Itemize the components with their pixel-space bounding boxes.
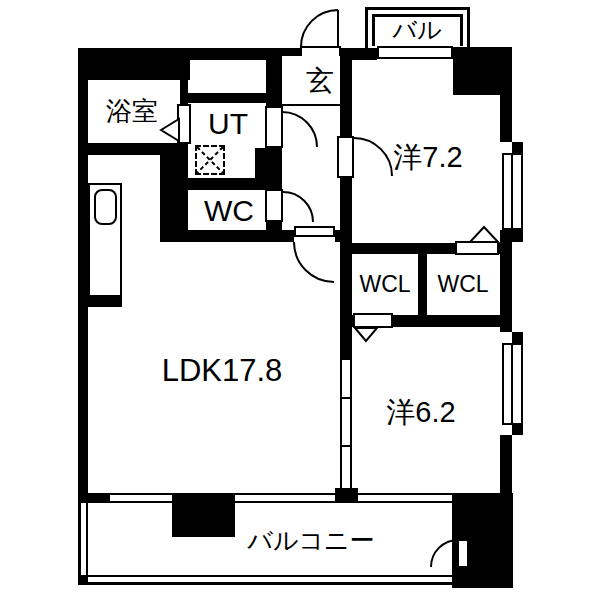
label-entrance: 玄 xyxy=(306,67,334,95)
door-swing-entrance xyxy=(301,10,338,47)
label-wcl-right: WCL xyxy=(437,273,488,296)
label-bathroom: 浴室 xyxy=(106,98,158,124)
door-triangle-bathroom xyxy=(161,119,179,141)
label-room72: 洋7.2 xyxy=(393,143,462,172)
door-swing-room72 xyxy=(354,138,392,176)
door-swing-utility xyxy=(282,112,317,147)
entry-triangle-wcl-right xyxy=(470,227,498,242)
label-toilet: WC xyxy=(204,196,254,226)
label-balcony: バルコニー xyxy=(247,528,374,553)
label-utility: UT xyxy=(208,109,248,139)
label-room62: 洋6.2 xyxy=(386,398,455,427)
door-swing-toilet xyxy=(283,192,313,222)
doors-overlay xyxy=(0,0,600,600)
label-balcony-upper: バル xyxy=(392,18,441,42)
entry-triangle-wcl-left xyxy=(355,328,377,341)
door-swing-ldk xyxy=(294,242,334,282)
label-ldk: LDK17.8 xyxy=(162,355,283,386)
label-wcl-left: WCL xyxy=(359,273,410,296)
floor-plan: 浴室 UT WC 玄 バル 洋7.2 WCL WCL LDK17.8 洋6.2 … xyxy=(0,0,600,600)
door-swing-storage xyxy=(431,540,458,567)
label-storage: 収 xyxy=(476,545,495,564)
